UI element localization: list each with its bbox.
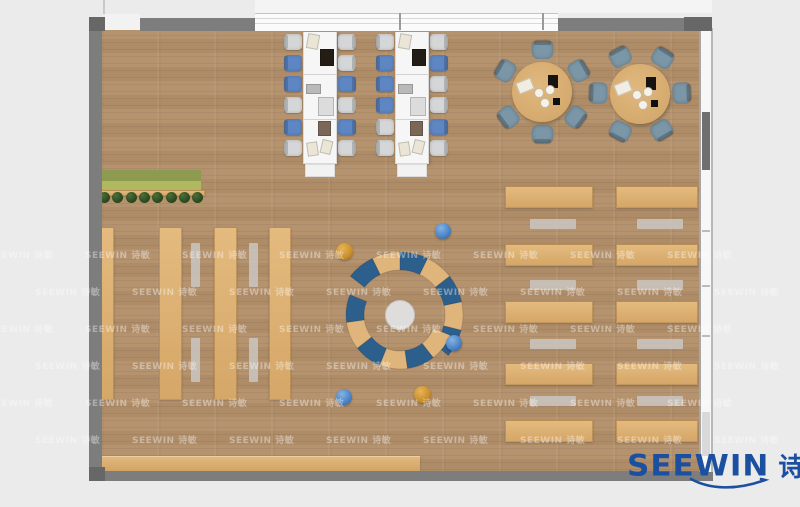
item-plate [534,88,544,98]
lounge-sofa-segment [444,302,463,330]
item-plate [643,87,653,97]
floorplan-canvas: SEEWIN 诗敏SEEWIN 诗敏SEEWIN 诗敏SEEWIN 诗敏SEEW… [0,0,800,507]
desk-bench [637,339,683,349]
item-book [318,121,331,136]
stool-blue [446,335,462,351]
chair [532,125,553,143]
watermark-text: SEEWIN 诗敏 [714,359,779,372]
stool-orange [336,243,353,260]
chair [430,119,448,135]
study-table-end [397,164,427,177]
reading-desk [505,186,593,208]
bookshelf-column [214,227,237,400]
chair [589,82,608,104]
plant-icon [126,192,137,203]
item-paper [306,33,320,50]
reading-desk [505,363,593,385]
planter-box-front [97,181,201,190]
exterior-window-band [255,0,712,13]
logo-text-cn: 诗敏 [778,453,800,483]
item-tablet [651,100,658,107]
wall-bottom [89,471,713,481]
chair [338,119,356,135]
reading-desk [505,301,593,323]
desk-bench [637,396,683,406]
desk-bench [637,219,683,229]
chair [376,55,394,71]
reading-desk [616,244,698,266]
window-mullion [542,13,544,30]
chair [376,140,394,156]
window-mullion [702,230,710,232]
reading-desk [616,363,698,385]
chair [376,34,394,50]
window-mullion [399,13,401,30]
item-laptop [412,49,426,66]
study-table-end [305,164,335,177]
chair [338,76,356,92]
wall-section-line [103,0,105,14]
chair [284,55,302,71]
item-paper [306,141,319,156]
chair [376,97,394,113]
watermark-text: SEEWIN 诗敏 [714,285,779,298]
planter-box [97,170,201,181]
chair [430,34,448,50]
item-laptop [318,97,334,116]
plant-icon [152,192,163,203]
wall-panel-dark [702,112,710,170]
chair [338,55,356,71]
window-top [255,13,558,32]
reading-desk [616,186,698,208]
chair [284,97,302,113]
item-laptop [410,97,426,116]
lounge-sofa-segment [346,295,367,323]
plant-icon [112,192,123,203]
chair [430,140,448,156]
window-mullion [702,335,710,337]
reading-desk [505,244,593,266]
logo-swoosh-icon [689,476,775,492]
window-mullion [702,285,710,287]
shelf-bench [191,338,200,382]
chair [532,41,553,59]
watermark-text: SEEWIN 诗敏 [0,248,53,261]
shelf-bench [249,338,258,382]
desk-bench [530,219,576,229]
chair [284,119,302,135]
wall-left [89,17,102,481]
item-plate [545,85,555,95]
door-gap-top-left [105,14,140,30]
watermark-text: SEEWIN 诗敏 [0,396,53,409]
chair [430,55,448,71]
item-book [410,121,423,136]
item-tray [398,84,413,94]
stool-blue [435,223,451,239]
chair [430,76,448,92]
chair [284,34,302,50]
item-plate [632,90,642,100]
item-plate [540,98,550,108]
chair [338,140,356,156]
watermark-text: SEEWIN 诗敏 [0,322,53,335]
chair [430,97,448,113]
wall-corner-bottom-left [89,467,105,481]
seewin-logo: SEEWIN诗敏 [627,447,800,484]
circular-lounge-sofa [328,243,472,387]
chair [338,34,356,50]
plant-icon [192,192,203,203]
plant-icon [166,192,177,203]
stool-orange [414,386,431,403]
reading-desk [616,301,698,323]
desk-bench [637,280,683,290]
plant-icon [139,192,150,203]
bookshelf-column [269,227,291,400]
wall-corner-top-left [89,17,105,31]
shelf-bench [249,243,258,287]
item-plate [638,100,648,110]
wall-corner-top-right [684,17,712,31]
chair [376,119,394,135]
chair [284,76,302,92]
shelf-bench [191,243,200,287]
item-laptop [320,49,334,66]
item-tablet [553,98,560,105]
stool-blue [336,389,352,405]
watermark-text: SEEWIN 诗敏 [714,433,779,446]
desk-bench [530,396,576,406]
chair [376,76,394,92]
item-paper [398,33,412,50]
reading-desk [616,420,698,442]
desk-bench [530,280,576,290]
item-tray [306,84,321,94]
chair [284,140,302,156]
window-wall-right [699,28,713,472]
item-paper [398,141,411,156]
bookshelf-column [159,227,182,400]
plant-icon [179,192,190,203]
chair [673,82,692,104]
wall-top-1 [140,18,256,31]
reading-desk [505,420,593,442]
desk-bench [530,339,576,349]
chair [338,97,356,113]
lounge-center-table [386,301,415,330]
